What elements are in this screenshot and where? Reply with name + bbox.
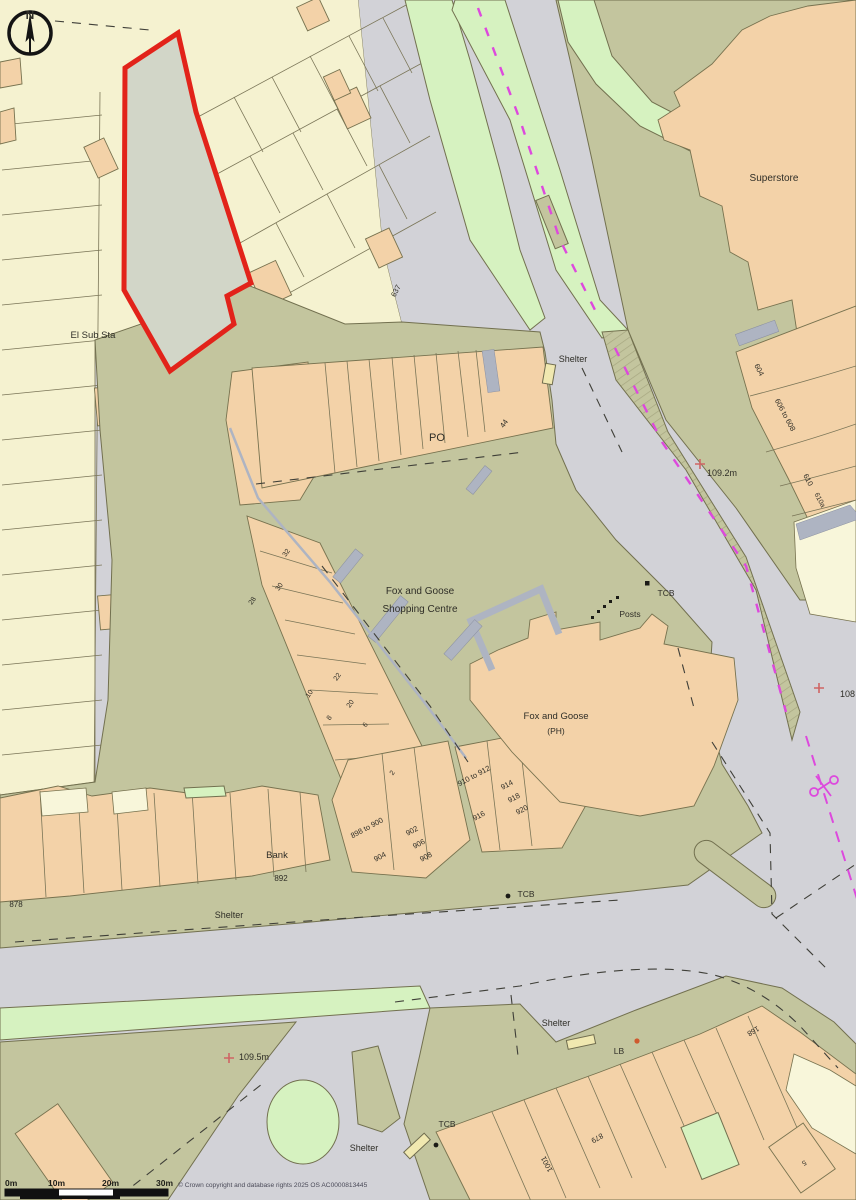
label-tcb-west: TCB xyxy=(439,1119,456,1129)
label-fg-ph-2: (PH) xyxy=(547,726,565,736)
label-shelter-bc: Shelter xyxy=(542,1018,571,1028)
spot-height-109-5: 109.5m xyxy=(239,1052,269,1062)
compass-letter: N xyxy=(26,8,35,22)
label-shelter-bl: Shelter xyxy=(350,1143,379,1153)
label-el-sub-sta: El Sub Sta xyxy=(71,330,117,341)
hn-892: 892 xyxy=(274,874,288,883)
label-lb: LB xyxy=(614,1046,625,1056)
scale-tick-10: 10m xyxy=(48,1178,65,1188)
copyright-text: © Crown copyright and database rights 20… xyxy=(178,1181,368,1189)
hn-878: 878 xyxy=(9,900,23,909)
spot-height-108: 108 xyxy=(840,689,855,699)
label-shelter-top: Shelter xyxy=(559,354,588,364)
scale-tick-20: 20m xyxy=(102,1178,119,1188)
label-po: PO xyxy=(429,432,445,444)
tcb-marker xyxy=(506,894,511,899)
map-canvas: N El Sub Sta Superstore Shelter PO Fox a… xyxy=(0,0,856,1200)
label-posts: Posts xyxy=(619,609,640,619)
label-tcb-south: TCB xyxy=(518,889,535,899)
label-shelter-mid: Shelter xyxy=(215,910,244,920)
label-superstore: Superstore xyxy=(750,173,799,184)
label-tcb-east: TCB xyxy=(658,588,675,598)
spot-height-109-2: 109.2m xyxy=(707,468,737,478)
label-fg-ph-1: Fox and Goose xyxy=(524,711,589,722)
label-fg-centre-1: Fox and Goose xyxy=(386,586,455,597)
site-plan-map: N El Sub Sta Superstore Shelter PO Fox a… xyxy=(0,0,856,1200)
label-fg-centre-2: Shopping Centre xyxy=(382,604,457,615)
scale-tick-0: 0m xyxy=(5,1178,18,1188)
tcb-marker xyxy=(645,581,650,586)
lb-marker xyxy=(634,1038,639,1043)
label-bank: Bank xyxy=(266,850,288,861)
scale-tick-30: 30m xyxy=(156,1178,173,1188)
tcb-marker xyxy=(434,1143,439,1148)
